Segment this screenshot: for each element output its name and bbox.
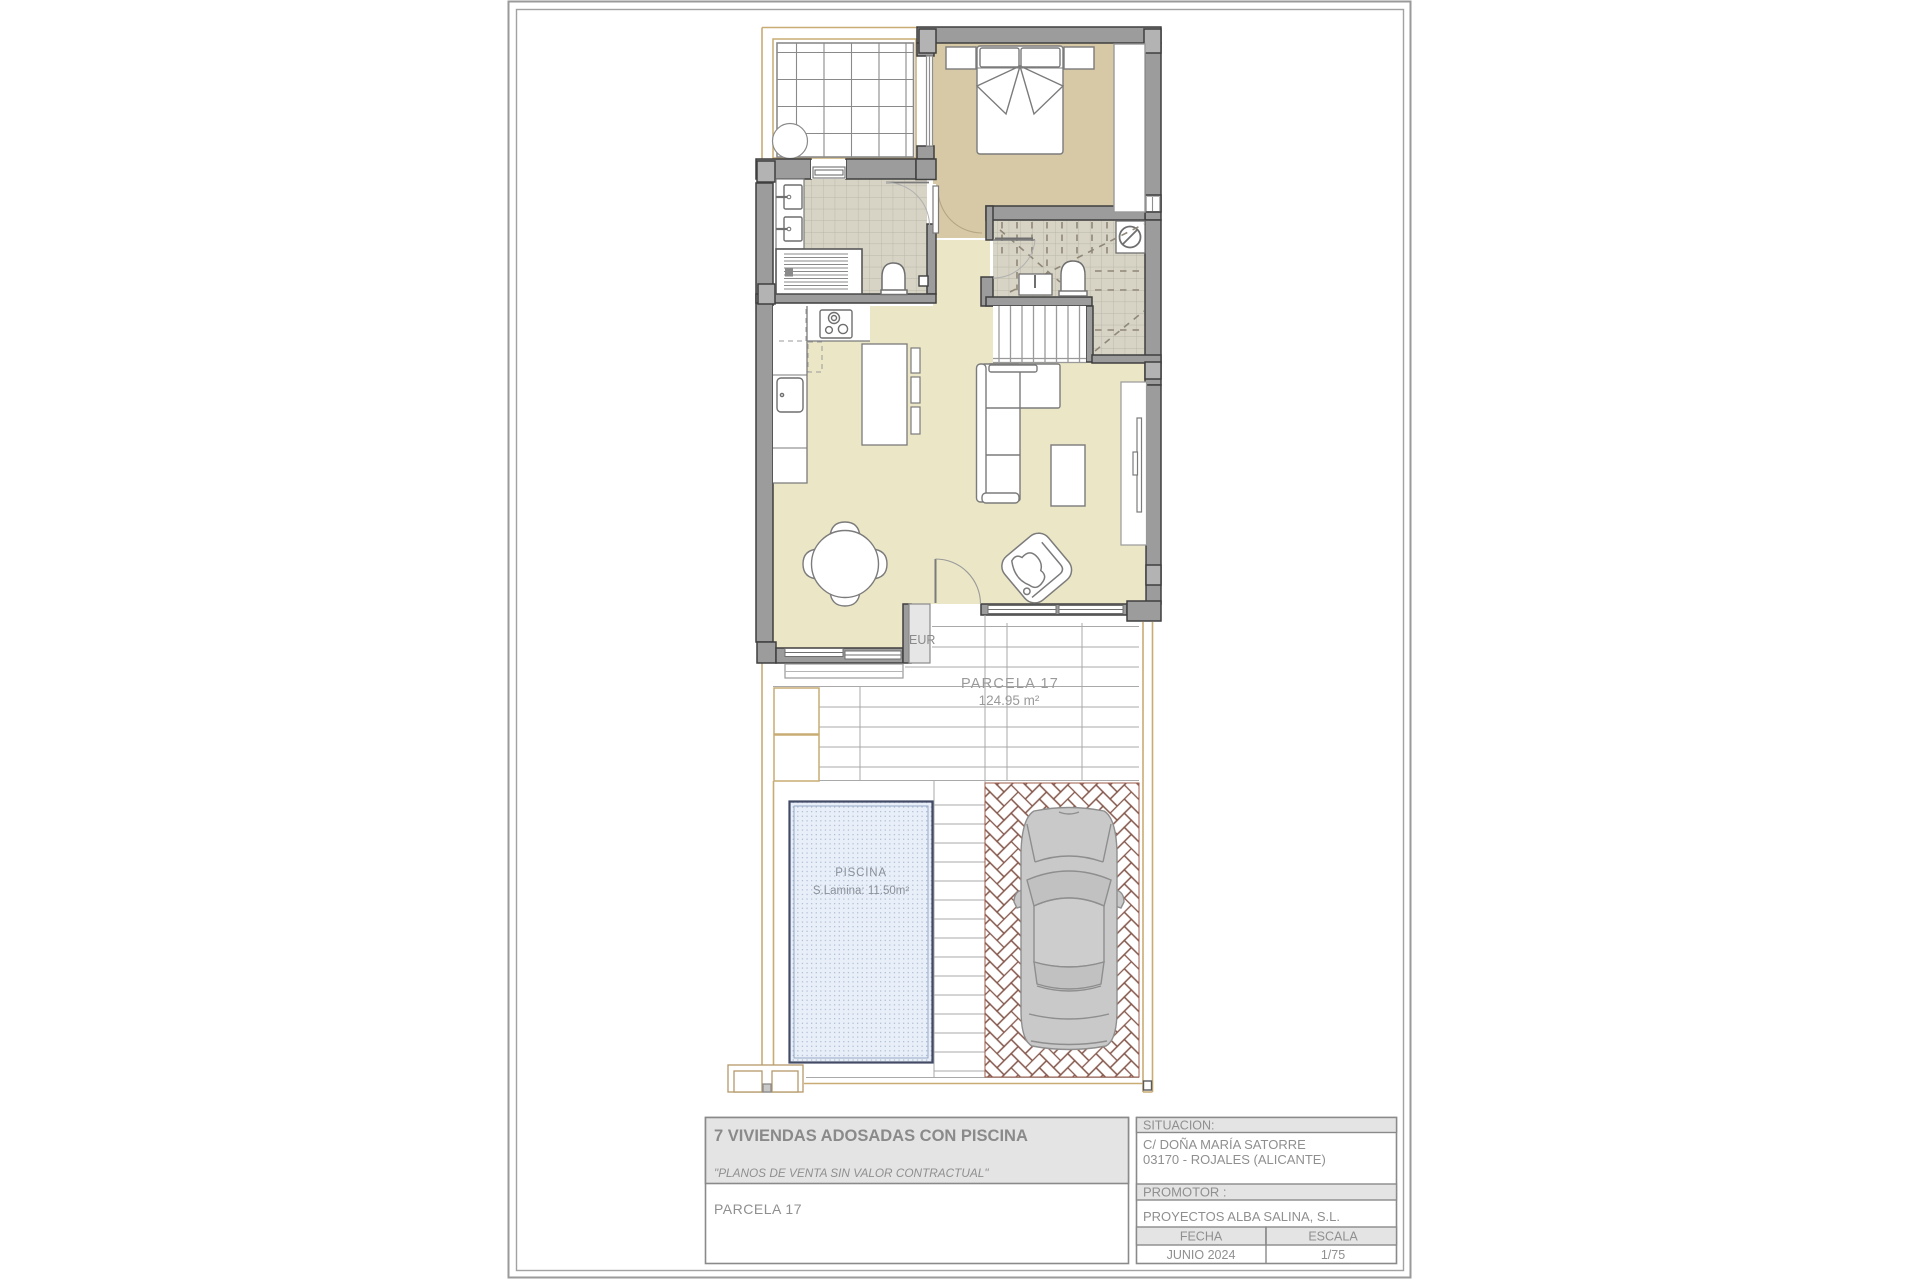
- svg-text:ESCALA: ESCALA: [1308, 1230, 1358, 1244]
- svg-text:PARCELA 17: PARCELA 17: [961, 676, 1059, 692]
- svg-text:JUNIO 2024: JUNIO 2024: [1167, 1248, 1236, 1262]
- svg-text:SITUACION:: SITUACION:: [1143, 1119, 1215, 1133]
- svg-text:PROYECTOS ALBA SALINA, S.L.: PROYECTOS ALBA SALINA, S.L.: [1143, 1209, 1340, 1224]
- svg-text:PISCINA: PISCINA: [835, 867, 887, 879]
- svg-text:124.95 m²: 124.95 m²: [979, 693, 1040, 708]
- svg-text:S.Lamina: 11.50m²: S.Lamina: 11.50m²: [813, 885, 909, 897]
- svg-text:"PLANOS DE VENTA SIN VALOR CON: "PLANOS DE VENTA SIN VALOR CONTRACTUAL": [714, 1166, 989, 1180]
- svg-text:1/75: 1/75: [1321, 1248, 1345, 1262]
- svg-text:C/ DOÑA MARÍA SATORRE: C/ DOÑA MARÍA SATORRE: [1143, 1137, 1306, 1152]
- svg-text:FECHA: FECHA: [1180, 1230, 1223, 1244]
- svg-text:03170 - ROJALES (ALICANTE): 03170 - ROJALES (ALICANTE): [1143, 1152, 1326, 1167]
- svg-text:7 VIVIENDAS ADOSADAS CON PISCI: 7 VIVIENDAS ADOSADAS CON PISCINA: [714, 1127, 1028, 1145]
- svg-text:PROMOTOR :: PROMOTOR :: [1143, 1185, 1227, 1200]
- svg-text:EUR: EUR: [909, 633, 935, 647]
- svg-text:PARCELA 17: PARCELA 17: [714, 1201, 802, 1217]
